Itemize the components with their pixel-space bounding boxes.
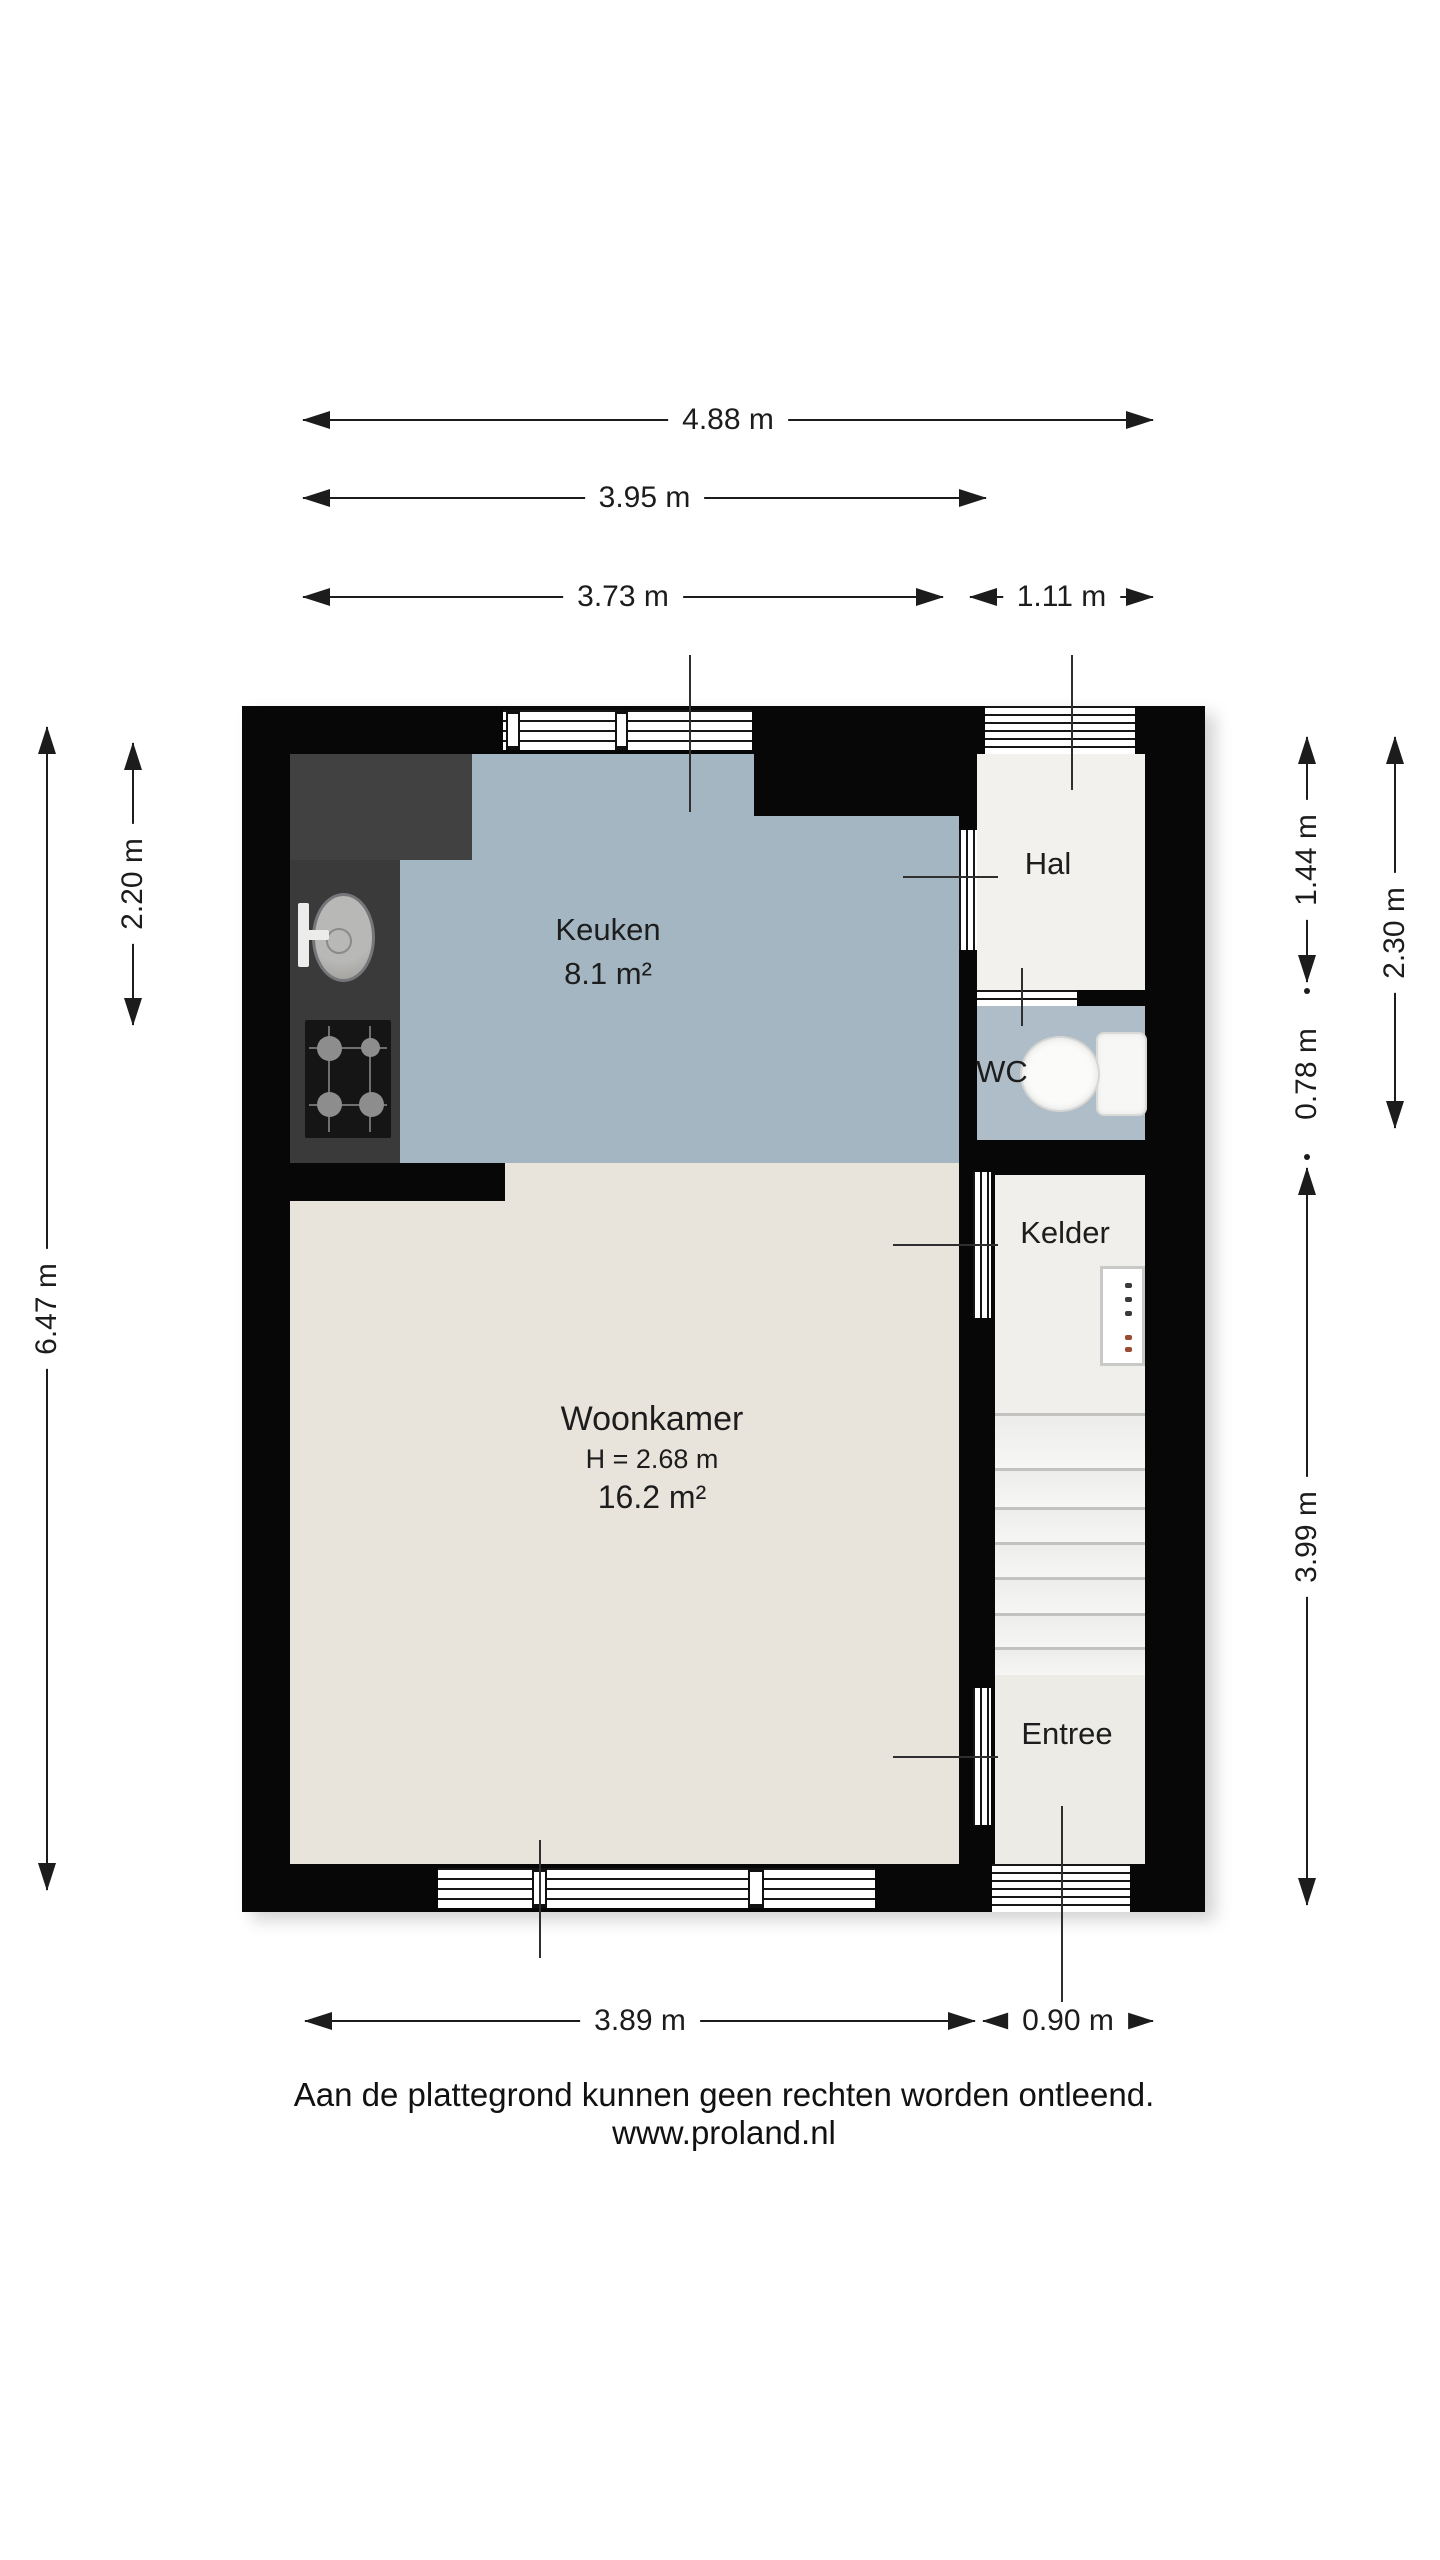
arrow-left-icon (302, 411, 330, 429)
sink-drain-icon (326, 928, 352, 954)
tick-kelder-door (893, 1244, 998, 1246)
arrow-left-icon (302, 588, 330, 606)
tick-woonkamer-window (539, 1840, 541, 1958)
keuken-window (503, 710, 752, 750)
dim-dot-icon (1304, 988, 1310, 994)
arrow-up-icon (38, 726, 56, 754)
meter-dot (1125, 1311, 1132, 1316)
tick-keuken-window (689, 655, 691, 812)
dimension-label: 3.99 m (1288, 1477, 1326, 1597)
meter-dot-red (1125, 1335, 1132, 1340)
stair-tread (995, 1647, 1145, 1675)
dimension-right-lower: 3.99 m (1306, 1168, 1308, 1905)
tick-wc-door (1021, 968, 1023, 1026)
footer-website: www.proland.nl (612, 2114, 836, 2152)
woonkamer-area: 16.2 m² (561, 1477, 744, 1517)
dimension-right-hal: 1.44 m (1306, 737, 1308, 982)
dimension-left-total: 6.47 m (46, 727, 48, 1890)
arrow-down-icon (1298, 955, 1316, 983)
arrow-right-icon (916, 588, 944, 606)
wall-keuken-top-lintel (754, 754, 977, 816)
tick-keuken-hal-door (903, 876, 998, 878)
woonkamer-name: Woonkamer (561, 1397, 744, 1441)
tick-entree-door (893, 1756, 998, 1758)
arrow-down-icon (38, 1863, 56, 1891)
arrow-right-icon (959, 489, 987, 507)
burner-icon (359, 1092, 384, 1117)
arrow-left-icon (304, 2012, 332, 2030)
hal-entrance-door (985, 706, 1135, 754)
stair-tread (995, 1542, 1145, 1577)
stair-tread (995, 1413, 1145, 1468)
staircase-icon (995, 1413, 1145, 1675)
window-mullion (748, 1868, 764, 1908)
meter-cabinet-icon (1100, 1266, 1145, 1366)
dimension-top-inner: 3.95 m (303, 497, 986, 499)
entree-floor (995, 1675, 1145, 1864)
dimension-label: 2.30 m (1376, 873, 1414, 993)
keuken-name: Keuken (555, 908, 660, 952)
arrow-up-icon (1386, 736, 1404, 764)
hal-wc-door (977, 990, 1077, 1006)
faucet-arm-icon (305, 930, 329, 940)
hal-label: Hal (1025, 842, 1072, 886)
burner-icon (317, 1036, 342, 1061)
arrow-left-icon (982, 2012, 1010, 2030)
burner-icon (361, 1038, 380, 1057)
wc-label: WC (976, 1050, 1028, 1094)
arrow-left-icon (302, 489, 330, 507)
entree-label: Entree (1021, 1712, 1112, 1756)
floorplan-outline: Keuken 8.1 m² Hal WC Kelder Woonkamer H … (242, 706, 1205, 1912)
woonkamer-label: Woonkamer H = 2.68 m 16.2 m² (561, 1397, 744, 1517)
dimension-label: 4.88 m (668, 401, 788, 439)
dimension-label: 6.47 m (28, 1249, 66, 1369)
arrow-right-icon (1126, 411, 1154, 429)
dimension-bottom-entree: 0.90 m (983, 2020, 1153, 2022)
toilet-tank-icon (1096, 1032, 1147, 1116)
entree-name: Entree (1021, 1712, 1112, 1756)
arrow-down-icon (124, 998, 142, 1026)
dimension-label: 3.73 m (563, 578, 683, 616)
dimension-right-upper-total: 2.30 m (1394, 737, 1396, 1128)
arrow-up-icon (124, 742, 142, 770)
window-mullion (615, 710, 628, 750)
dimension-label: 1.11 m (1003, 578, 1121, 616)
dimension-label: 3.95 m (585, 479, 705, 517)
keuken-hal-door (959, 830, 977, 950)
arrow-right-icon (1126, 588, 1154, 606)
dimension-right-wc: 0.78 m (1306, 988, 1308, 1160)
toilet-icon (1020, 1036, 1100, 1112)
dim-dot-icon (1304, 1154, 1310, 1160)
kelder-label: Kelder (1020, 1211, 1110, 1255)
dimension-label: 3.89 m (580, 2002, 700, 2040)
dimension-label: 0.90 m (1008, 2002, 1128, 2040)
woonkamer-window (438, 1868, 875, 1908)
tick-hal-door (1071, 655, 1073, 790)
wall-keuken-woonkamer-stub (290, 1163, 505, 1201)
dimension-label: 1.44 m (1288, 800, 1326, 920)
keuken-label: Keuken 8.1 m² (555, 908, 660, 996)
kelder-name: Kelder (1020, 1211, 1110, 1255)
arrow-right-icon (1126, 2012, 1154, 2030)
window-mullion (506, 710, 520, 750)
wc-name: WC (976, 1050, 1028, 1094)
dimension-top-keuken: 3.73 m (303, 596, 943, 598)
keuken-area: 8.1 m² (555, 952, 660, 996)
arrow-down-icon (1298, 1878, 1316, 1906)
tick-front-door (1061, 1806, 1063, 2002)
gas-hob-icon (305, 1020, 391, 1138)
hal-name: Hal (1025, 842, 1072, 886)
arrow-left-icon (969, 588, 997, 606)
dimension-left-keuken: 2.20 m (132, 743, 134, 1025)
dimension-top-total: 4.88 m (303, 419, 1153, 421)
woonkamer-height: H = 2.68 m (561, 1441, 744, 1477)
stair-tread (995, 1468, 1145, 1507)
dimension-label: 0.78 m (1288, 1014, 1326, 1134)
dimension-top-hal: 1.11 m (970, 596, 1153, 598)
wall-wc-kelder (959, 1140, 1145, 1175)
kitchen-cabinet (290, 754, 472, 860)
stair-tread (995, 1577, 1145, 1613)
meter-dot (1125, 1297, 1132, 1302)
meter-dot-red (1125, 1347, 1132, 1352)
stair-tread (995, 1507, 1145, 1542)
stair-tread (995, 1613, 1145, 1647)
dimension-bottom-woonkamer: 3.89 m (305, 2020, 975, 2022)
footer-disclaimer: Aan de plattegrond kunnen geen rechten w… (294, 2076, 1155, 2114)
meter-dot (1125, 1283, 1132, 1288)
dimension-label: 2.20 m (114, 824, 152, 944)
arrow-up-icon (1298, 1167, 1316, 1195)
arrow-up-icon (1298, 736, 1316, 764)
arrow-down-icon (1386, 1101, 1404, 1129)
burner-icon (317, 1092, 342, 1117)
floorplan-page: Keuken 8.1 m² Hal WC Kelder Woonkamer H … (0, 0, 1440, 2560)
arrow-right-icon (948, 2012, 976, 2030)
